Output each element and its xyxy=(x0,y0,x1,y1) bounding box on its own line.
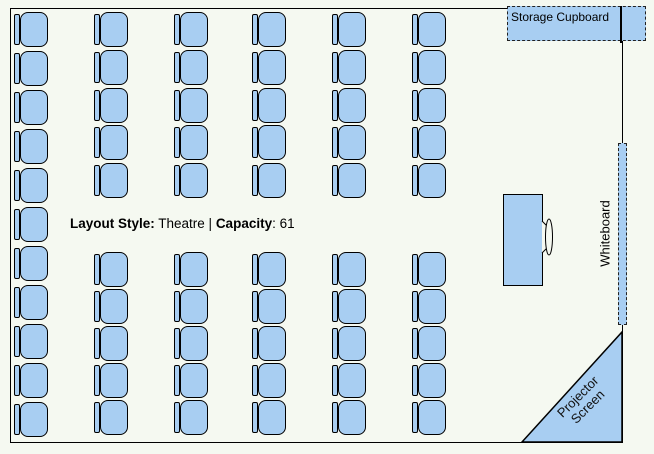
chair-seat xyxy=(20,285,48,320)
chair-col5-row3[interactable] xyxy=(332,88,366,123)
chair-col3-row5[interactable] xyxy=(174,163,208,198)
chair-col1-row10[interactable] xyxy=(14,363,48,398)
chair-col3-row3[interactable] xyxy=(174,88,208,123)
chair-col4-row3[interactable] xyxy=(252,88,286,123)
chair-seat xyxy=(338,88,366,123)
chair-col6-row1[interactable] xyxy=(412,12,446,47)
chair-seat xyxy=(338,163,366,198)
chair-seat xyxy=(100,289,128,324)
chair-col4-row5[interactable] xyxy=(252,163,286,198)
chair-col1-row4[interactable] xyxy=(14,129,48,164)
chair-seat xyxy=(338,400,366,435)
chair-seat xyxy=(20,90,48,125)
chair-seat xyxy=(258,88,286,123)
right-wall-segment xyxy=(620,6,622,43)
chair-col6-row6[interactable] xyxy=(412,252,446,287)
chair-col2-row10[interactable] xyxy=(94,400,128,435)
chair-seat xyxy=(100,12,128,47)
chair-seat xyxy=(20,207,48,242)
storage-cupboard[interactable]: Storage Cupboard xyxy=(507,6,646,41)
chair-seat xyxy=(418,163,446,198)
chair-col2-row4[interactable] xyxy=(94,125,128,160)
storage-cupboard-label: Storage Cupboard xyxy=(511,10,609,24)
chair-seat xyxy=(180,50,208,85)
chair-seat xyxy=(258,326,286,361)
chair-seat xyxy=(338,125,366,160)
layout-info-text: Layout Style: Theatre | Capacity: 61 xyxy=(70,216,295,231)
chair-col2-row8[interactable] xyxy=(94,326,128,361)
chair-col3-row8[interactable] xyxy=(174,326,208,361)
chair-seat xyxy=(258,289,286,324)
chair-seat xyxy=(418,88,446,123)
chair-seat xyxy=(180,400,208,435)
presenter-table[interactable] xyxy=(503,194,543,286)
chair-col2-row3[interactable] xyxy=(94,88,128,123)
chair-col5-row10[interactable] xyxy=(332,400,366,435)
chair-col4-row1[interactable] xyxy=(252,12,286,47)
chair-seat xyxy=(258,12,286,47)
chair-seat xyxy=(100,400,128,435)
chair-seat xyxy=(100,363,128,398)
chair-seat xyxy=(100,125,128,160)
chair-col3-row6[interactable] xyxy=(174,252,208,287)
capacity-label: Capacity xyxy=(216,216,272,231)
chair-seat xyxy=(338,363,366,398)
chair-seat xyxy=(20,402,48,437)
chair-seat xyxy=(20,324,48,359)
chair-seat xyxy=(20,51,48,86)
chair-seat xyxy=(180,12,208,47)
chair-seat xyxy=(338,326,366,361)
chair-col6-row8[interactable] xyxy=(412,326,446,361)
chair-seat xyxy=(258,400,286,435)
chair-seat xyxy=(180,289,208,324)
projector-screen[interactable]: Projector Screen xyxy=(520,330,624,444)
chair-col6-row2[interactable] xyxy=(412,50,446,85)
chair-col4-row8[interactable] xyxy=(252,326,286,361)
chair-seat xyxy=(258,163,286,198)
chair-col1-row5[interactable] xyxy=(14,168,48,203)
chair-col2-row1[interactable] xyxy=(94,12,128,47)
chair-col5-row7[interactable] xyxy=(332,289,366,324)
chair-col1-row3[interactable] xyxy=(14,90,48,125)
chair-col6-row3[interactable] xyxy=(412,88,446,123)
chair-col3-row10[interactable] xyxy=(174,400,208,435)
chair-seat xyxy=(258,252,286,287)
layout-style-label: Layout Style: xyxy=(70,216,155,231)
chair-seat xyxy=(100,163,128,198)
chair-col5-row4[interactable] xyxy=(332,125,366,160)
chair-col2-row5[interactable] xyxy=(94,163,128,198)
chair-col4-row6[interactable] xyxy=(252,252,286,287)
chair-col1-row8[interactable] xyxy=(14,285,48,320)
chair-seat xyxy=(418,289,446,324)
chair-col1-row9[interactable] xyxy=(14,324,48,359)
chair-seat xyxy=(180,363,208,398)
chair-seat xyxy=(100,326,128,361)
chair-col5-row6[interactable] xyxy=(332,252,366,287)
chair-seat xyxy=(100,50,128,85)
chair-seat xyxy=(258,125,286,160)
chair-seat xyxy=(100,88,128,123)
chair-col6-row5[interactable] xyxy=(412,163,446,198)
chair-seat xyxy=(20,363,48,398)
chair-seat xyxy=(258,363,286,398)
chair-col5-row8[interactable] xyxy=(332,326,366,361)
chair-col3-row2[interactable] xyxy=(174,50,208,85)
chair-seat xyxy=(20,168,48,203)
chair-col1-row1[interactable] xyxy=(14,12,48,47)
chair-seat xyxy=(20,12,48,47)
chair-col6-row4[interactable] xyxy=(412,125,446,160)
chair-col6-row7[interactable] xyxy=(412,289,446,324)
room-layout-canvas: Storage Cupboard Whiteboard Projector Sc… xyxy=(0,0,654,454)
chair-seat xyxy=(338,252,366,287)
chair-seat xyxy=(418,125,446,160)
chair-seat xyxy=(180,326,208,361)
chair-col4-row4[interactable] xyxy=(252,125,286,160)
whiteboard-label: Whiteboard xyxy=(598,143,615,325)
whiteboard[interactable] xyxy=(618,143,627,325)
chair-seat xyxy=(180,252,208,287)
projector-screen-shape[interactable] xyxy=(522,332,622,442)
chair-col5-row5[interactable] xyxy=(332,163,366,198)
chair-col1-row2[interactable] xyxy=(14,51,48,86)
chair-col6-row9[interactable] xyxy=(412,363,446,398)
chair-col5-row2[interactable] xyxy=(332,50,366,85)
chair-seat xyxy=(258,50,286,85)
chair-col5-row1[interactable] xyxy=(332,12,366,47)
chair-seat xyxy=(20,246,48,281)
chair-col2-row9[interactable] xyxy=(94,363,128,398)
chair-seat xyxy=(100,252,128,287)
chair-seat xyxy=(180,125,208,160)
chair-col3-row1[interactable] xyxy=(174,12,208,47)
presenter-chair[interactable] xyxy=(540,212,556,262)
chair-col1-row11[interactable] xyxy=(14,402,48,437)
chair-seat xyxy=(418,363,446,398)
chair-col5-row9[interactable] xyxy=(332,363,366,398)
chair-col4-row10[interactable] xyxy=(252,400,286,435)
chair-col4-row2[interactable] xyxy=(252,50,286,85)
chair-col2-row6[interactable] xyxy=(94,252,128,287)
chair-seat xyxy=(418,400,446,435)
chair-col2-row2[interactable] xyxy=(94,50,128,85)
chair-seat xyxy=(180,88,208,123)
chair-col4-row9[interactable] xyxy=(252,363,286,398)
chair-seat xyxy=(338,289,366,324)
chair-seat xyxy=(418,326,446,361)
chair-col1-row6[interactable] xyxy=(14,207,48,242)
chair-seat xyxy=(418,12,446,47)
capacity-value: : 61 xyxy=(272,216,295,231)
chair-col3-row4[interactable] xyxy=(174,125,208,160)
chair-seat xyxy=(180,163,208,198)
chair-seat xyxy=(20,129,48,164)
chair-col1-row7[interactable] xyxy=(14,246,48,281)
chair-seat xyxy=(338,50,366,85)
chair-col3-row7[interactable] xyxy=(174,289,208,324)
chair-col4-row7[interactable] xyxy=(252,289,286,324)
chair-col3-row9[interactable] xyxy=(174,363,208,398)
layout-style-value: Theatre | xyxy=(155,216,216,231)
chair-seat xyxy=(338,12,366,47)
chair-seat xyxy=(418,252,446,287)
presenter-chair-back xyxy=(546,219,553,255)
chair-col6-row10[interactable] xyxy=(412,400,446,435)
chair-col2-row7[interactable] xyxy=(94,289,128,324)
chair-seat xyxy=(418,50,446,85)
